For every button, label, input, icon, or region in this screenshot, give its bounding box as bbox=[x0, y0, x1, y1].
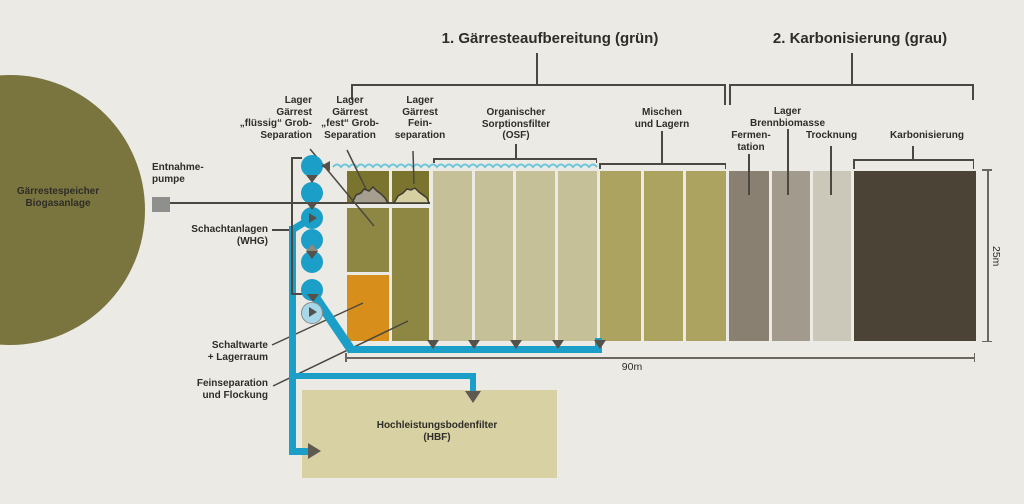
flow-arrow-up-pair bbox=[306, 244, 318, 251]
mischen-bracket-tick-right bbox=[725, 163, 727, 169]
karbonisierung-bracket-tick-right bbox=[973, 159, 975, 169]
osf-basin-2 bbox=[475, 171, 513, 341]
section-1-bracket-tick-right bbox=[724, 84, 726, 105]
mischen-basin-2 bbox=[644, 171, 683, 341]
basin-fluessig-mid bbox=[347, 208, 389, 272]
brennbiomasse-hall bbox=[772, 171, 810, 341]
drain-point-1 bbox=[427, 340, 439, 349]
label-lager-gaerrest-fluessig: LagerGärrest „flüssig“ Grob-Separation bbox=[212, 95, 312, 141]
osf-basin-1 bbox=[433, 171, 472, 341]
width-dimension-tick-left bbox=[345, 353, 347, 362]
flow-arrow-down-1 bbox=[306, 175, 318, 183]
height-dimension-tick-bottom bbox=[982, 341, 992, 343]
schachtanlagen-dash bbox=[272, 229, 289, 231]
fermentation-stub bbox=[748, 154, 750, 195]
section-2-bracket-tick-right bbox=[972, 84, 974, 100]
mischen-bracket bbox=[599, 163, 726, 165]
karbonisierung-hall bbox=[854, 171, 976, 341]
flow-arrow-down-pump6 bbox=[307, 294, 319, 302]
pipe-bottom-elbow bbox=[289, 448, 309, 455]
entnahmepumpe-square bbox=[152, 197, 170, 212]
osf-bracket-tick-left bbox=[433, 158, 435, 163]
drain-point-3 bbox=[510, 340, 522, 349]
pipe-mid-drop bbox=[470, 373, 476, 392]
mischen-stub bbox=[661, 131, 663, 164]
flow-arrow-left-wave bbox=[321, 161, 330, 171]
label-fermentation: Fermen-tation bbox=[712, 130, 790, 153]
mischen-bracket-tick-left bbox=[599, 163, 601, 169]
drain-point-2 bbox=[468, 340, 480, 349]
fermentation-hall bbox=[729, 171, 769, 341]
flow-arrow-down-pair bbox=[306, 251, 318, 259]
label-entnahmepumpe: Entnahme-pumpe bbox=[152, 162, 232, 185]
label-karbonisierung: Karbonisierung bbox=[866, 130, 988, 142]
basin-fest-top bbox=[392, 171, 429, 202]
karbonisierung-stub bbox=[912, 146, 914, 159]
section-2-header: 2. Karbonisierung (grau) bbox=[755, 30, 965, 47]
shaft-bracket-vertical bbox=[291, 157, 293, 295]
site-plan-diagram: Gärrestespeicher Biogasanlage 1. Gärrest… bbox=[0, 0, 1024, 504]
section-2-bracket-tick-left bbox=[729, 84, 731, 105]
feed-line bbox=[170, 202, 430, 204]
section-2-bracket-stub bbox=[851, 53, 853, 84]
height-dimension-label: 25m bbox=[990, 246, 1002, 266]
drain-point-5 bbox=[594, 340, 606, 349]
section-1-header: 1. Gärresteaufbereitung (grün) bbox=[430, 30, 670, 47]
osf-stub bbox=[515, 144, 517, 158]
karbonisierung-bracket-tick-left bbox=[853, 159, 855, 169]
pipe-arrow-into-hbf-top bbox=[465, 391, 481, 403]
trocknung-hall bbox=[813, 171, 851, 341]
height-dimension-line bbox=[987, 169, 989, 342]
drain-point-4 bbox=[552, 340, 564, 349]
hbf-label: Hochleistungsbodenfilter(HBF) bbox=[317, 420, 557, 443]
section-2-bracket bbox=[729, 84, 974, 86]
height-dimension-tick-top bbox=[982, 169, 992, 171]
osf-basin-4 bbox=[558, 171, 597, 341]
mischen-basin-1 bbox=[600, 171, 641, 341]
label-lager-gaerrest-fein: LagerGärrest Fein-separation bbox=[374, 95, 466, 141]
shaft-bracket-bottom-stub bbox=[291, 293, 302, 295]
osf-bracket bbox=[433, 158, 597, 160]
trocknung-stub bbox=[830, 146, 832, 195]
label-mischen-lagern: Mischenund Lagern bbox=[602, 107, 722, 130]
section-1-bracket-stub bbox=[536, 53, 538, 84]
flow-arrow-right-pump3 bbox=[309, 213, 317, 223]
width-dimension-label: 90m bbox=[552, 361, 712, 373]
pump-shaft-2 bbox=[301, 182, 323, 204]
digestate-storage-label: Gärrestespeicher Biogasanlage bbox=[2, 186, 114, 209]
label-schaltwarte: Schaltwarte+ Lagerraum bbox=[118, 340, 268, 363]
digestate-storage-circle bbox=[0, 75, 145, 345]
pipe-arrow-into-hbf-left bbox=[308, 443, 321, 459]
label-lager-brennbiomasse: LagerBrennbiomasse bbox=[727, 106, 848, 129]
flow-arrow-down-2 bbox=[306, 202, 318, 210]
section-1-bracket bbox=[351, 84, 726, 86]
shaft-bracket-top-stub bbox=[291, 157, 302, 159]
width-dimension-tick-right bbox=[974, 353, 976, 362]
basin-fluessig-top bbox=[347, 171, 389, 202]
brennbiomasse-stub bbox=[787, 129, 789, 195]
width-dimension-line bbox=[345, 357, 975, 359]
osf-bracket-tick-right bbox=[596, 158, 598, 163]
flow-arrow-right-pump7 bbox=[309, 307, 317, 317]
mischen-basin-3 bbox=[686, 171, 726, 341]
basin-feinseparation-tall bbox=[392, 208, 429, 341]
label-schachtanlagen: Schachtanlagen(WHG) bbox=[118, 224, 268, 247]
label-feinseparation: Feinseparationund Flockung bbox=[118, 378, 268, 401]
label-osf: OrganischerSorptionsfilter(OSF) bbox=[456, 107, 576, 142]
pump-shaft-1 bbox=[301, 155, 323, 177]
water-wave-line bbox=[333, 165, 597, 168]
karbonisierung-bracket bbox=[853, 159, 974, 161]
osf-basin-3 bbox=[516, 171, 555, 341]
pipe-mid-horizontal bbox=[289, 373, 476, 379]
basin-schaltwarte-orange bbox=[347, 275, 389, 341]
